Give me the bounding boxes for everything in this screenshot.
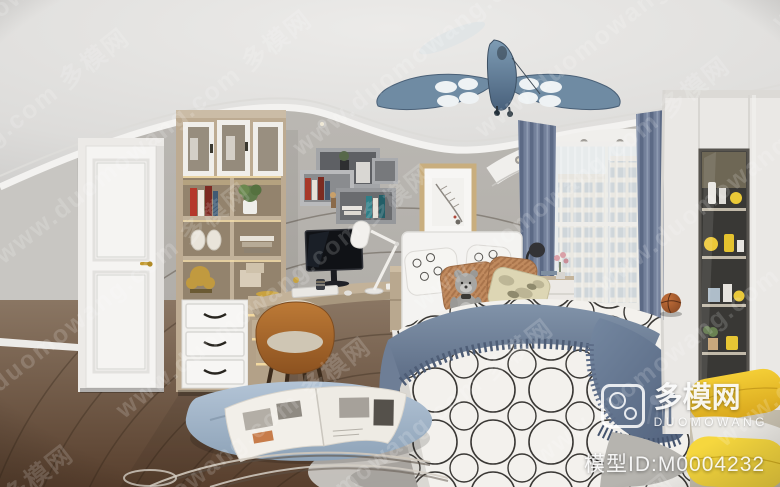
bedroom-panorama-render: www.duomowang.com 多模网www.duomowang.com 多… [0,0,780,487]
logo-text-en: DUOMOWANG [654,416,768,428]
duomowang-logo-icon [601,384,645,428]
model-id: 模型ID:M0004232 [584,448,765,478]
duomowang-logo: 多模网 DUOMOWANG [601,384,768,428]
logo-text-zh: 多模网 [654,384,768,413]
model-id-label: 模型ID: [584,453,658,476]
logo-circle-small [624,407,637,420]
model-id-value: M0004232 [658,453,765,476]
logo-circle-large [609,392,626,409]
